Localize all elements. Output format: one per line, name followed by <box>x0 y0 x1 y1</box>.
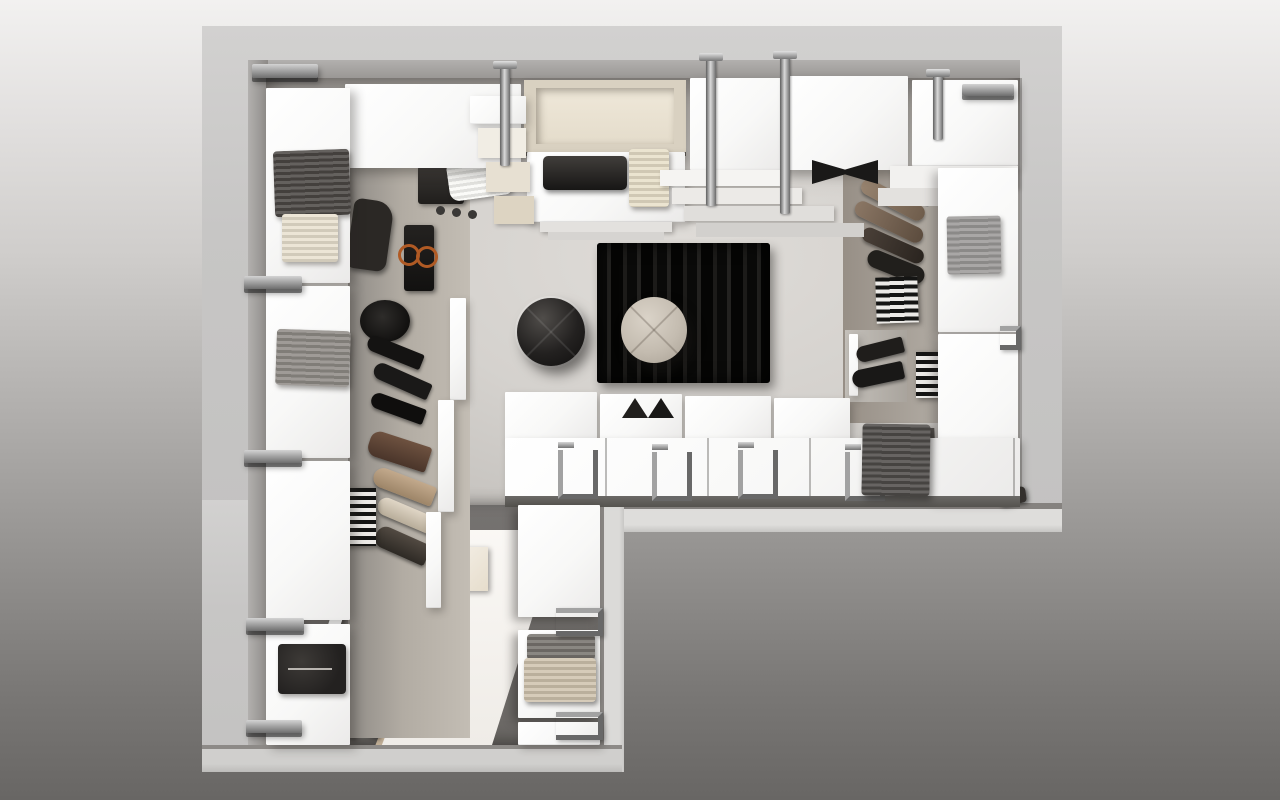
folded-tank-beige <box>524 658 596 702</box>
cascade-strip <box>696 223 864 237</box>
chrome-clamp-left <box>252 64 318 78</box>
chrome-bracket-corridor <box>556 608 603 636</box>
towel-gray-right <box>946 216 1001 275</box>
knob-dot <box>452 208 461 217</box>
tray-black <box>543 156 627 190</box>
bottom-wall-lit <box>202 745 622 772</box>
towel-cream <box>282 214 338 262</box>
open-unit-interior <box>536 88 674 144</box>
garment-bag-ring <box>416 246 438 268</box>
shelf-edge-panel <box>438 400 454 512</box>
chrome-hook <box>933 74 943 140</box>
render-stage <box>0 0 1280 800</box>
chrome-clamp-left <box>244 276 302 289</box>
step-shelf <box>494 196 534 224</box>
striped-box-right <box>875 276 919 323</box>
hat-black <box>360 300 410 342</box>
chrome-bracket-topright <box>962 84 1014 96</box>
chrome-clamp-left <box>244 450 302 463</box>
island-shelf-panel <box>505 392 597 440</box>
chrome-hook-island <box>558 450 598 499</box>
sweater-dark-gray <box>273 149 351 218</box>
cabinet-corridor-1 <box>518 505 600 617</box>
notch-wall-horizontal <box>610 503 1062 532</box>
dresser-step <box>540 222 672 232</box>
chrome-clamp-left <box>246 720 302 733</box>
cabinet-top-c <box>784 76 908 170</box>
shelf-edge-panel <box>450 298 466 400</box>
cabinet-left-3 <box>266 461 350 620</box>
sweater-knit-gray <box>275 329 351 388</box>
chrome-clamp-left <box>246 618 304 631</box>
knob-dot <box>468 210 477 219</box>
chrome-hook <box>706 58 716 206</box>
pouf-black <box>517 298 585 366</box>
chrome-hook <box>780 56 790 214</box>
step-shelf <box>470 96 526 124</box>
chrome-hook-island <box>738 450 778 499</box>
sweater-black-zipper <box>288 668 332 670</box>
island-shelf-panel <box>774 398 850 440</box>
knob-dot <box>436 206 445 215</box>
step-shelf <box>486 162 530 192</box>
pouf-beige <box>621 297 687 363</box>
cascade-strip <box>660 170 780 186</box>
chrome-hook-island <box>652 452 692 501</box>
chrome-bracket-right <box>1000 326 1021 350</box>
chrome-hook <box>500 66 510 166</box>
dresser-step <box>548 232 664 240</box>
folded-stack-gray <box>527 634 595 660</box>
wall-face-left <box>248 60 268 750</box>
island-shelf-panel <box>685 396 771 440</box>
blanket-gray <box>861 423 930 496</box>
chrome-bracket-corridor <box>556 712 603 740</box>
notch-wall-vertical <box>600 505 624 772</box>
cabinet-top-b <box>690 78 782 170</box>
cascade-strip <box>684 206 834 221</box>
shelf-edge-panel <box>426 512 441 608</box>
rug <box>597 243 770 383</box>
